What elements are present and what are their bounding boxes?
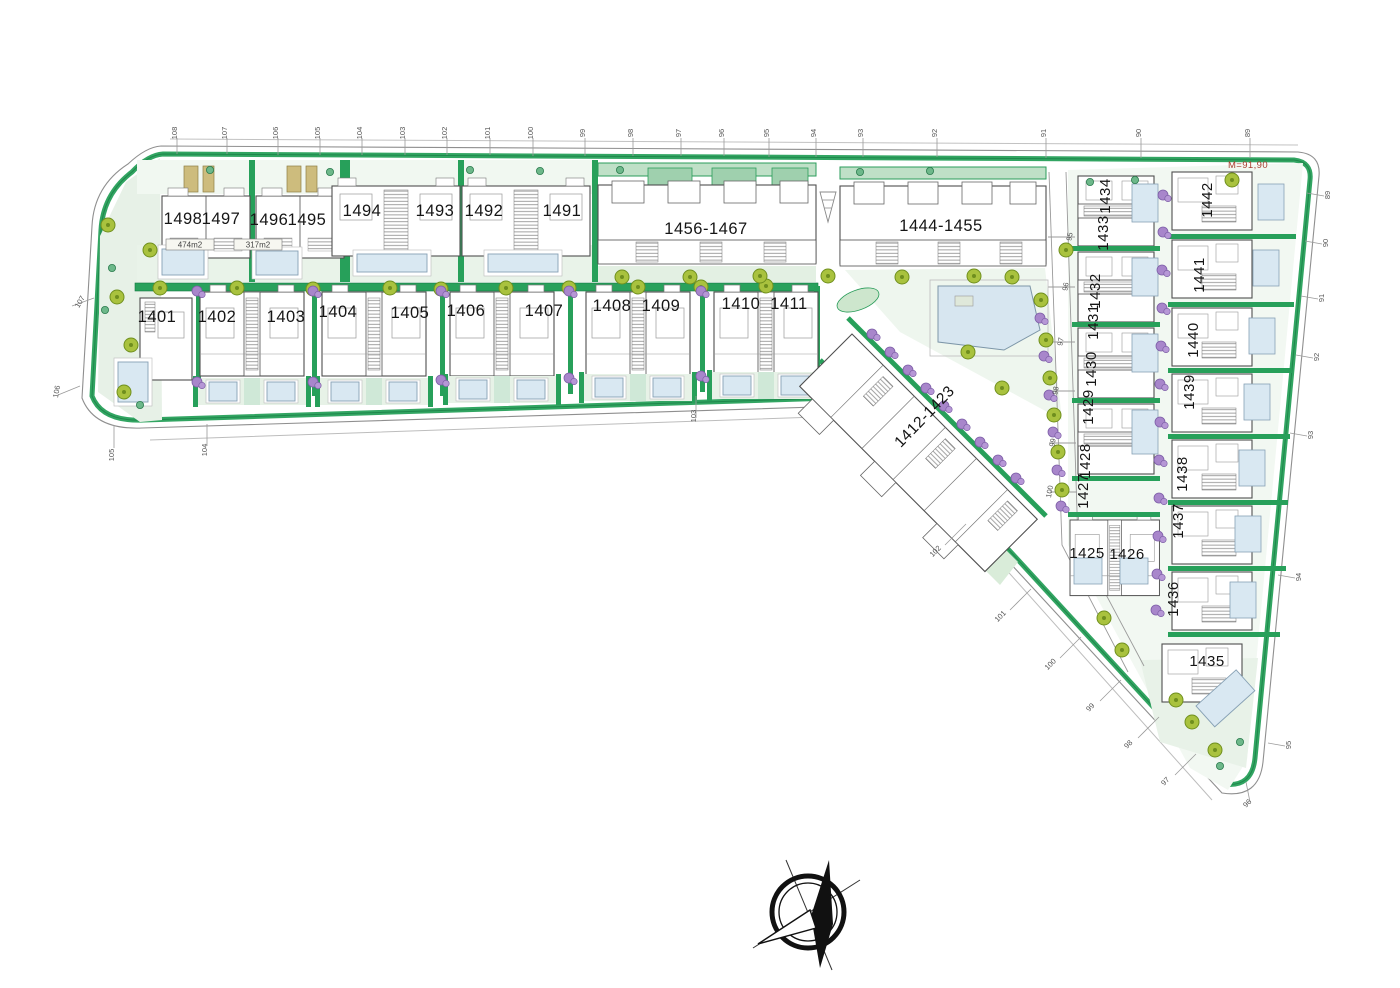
dim-top-106: 106 [271, 127, 280, 140]
dim-inner-95: 95 [1064, 232, 1074, 242]
plot-label-1411: 1411 [770, 295, 807, 313]
dim-top-94: 94 [809, 129, 818, 137]
plot-label-1406: 1406 [447, 302, 486, 320]
dim-top-91: 91 [1039, 129, 1048, 137]
plot-label-1498: 1498 [164, 210, 203, 228]
plot-label-1403: 1403 [267, 308, 306, 326]
plot-label-1405: 1405 [391, 304, 430, 322]
plot-label-1442: 1442 [1199, 182, 1216, 217]
garden-1402-1403 [193, 376, 311, 407]
dim-right-91: 91 [1317, 294, 1326, 302]
plot-label-1408: 1408 [593, 297, 632, 315]
plot-label-1438: 1438 [1174, 456, 1191, 491]
dim-top-102: 102 [440, 127, 449, 140]
dim-left-105: 105 [107, 449, 116, 462]
garden-1406-1407 [443, 374, 561, 405]
building-1402-1403 [200, 285, 304, 376]
dim-top-95: 95 [762, 129, 771, 137]
dim-top-101: 101 [483, 127, 492, 140]
dim-top-92: 92 [930, 129, 939, 137]
plot-label-1491: 1491 [543, 202, 582, 220]
dim-right-96: 96 [1241, 797, 1253, 809]
building-1404-1405 [322, 285, 426, 376]
site-plan-page: 474m2 317m2 1498 1497 1496 1495 1494 149… [0, 0, 1400, 988]
dim-diag-101: 101 [993, 609, 1008, 624]
plot-label-1432: 1432 [1087, 273, 1104, 308]
plot-label-1494: 1494 [343, 202, 382, 220]
garden-1404-1405 [315, 376, 433, 407]
plot-label-1430: 1430 [1083, 351, 1100, 386]
plot-label-1435: 1435 [1189, 653, 1224, 670]
plot-label-1437: 1437 [1170, 503, 1187, 538]
plot-label-1439: 1439 [1181, 374, 1198, 409]
garden-1408-1409 [579, 372, 697, 403]
plot-label-1401: 1401 [138, 308, 177, 326]
dim-right-89: 89 [1323, 191, 1332, 199]
plot-label-1434: 1434 [1097, 178, 1114, 213]
dim-top-108: 108 [170, 127, 179, 140]
dim-top-104: 104 [355, 127, 364, 140]
plot-label-1426: 1426 [1109, 546, 1144, 563]
plot-label-1444-1455: 1444-1455 [899, 217, 982, 235]
dim-top-100: 100 [526, 127, 535, 140]
building-1441 [1172, 240, 1252, 298]
plot-label-1402: 1402 [198, 308, 237, 326]
plot-label-1497: 1497 [202, 210, 241, 228]
dim-top-89: 89 [1243, 129, 1252, 137]
dim-diag-100: 100 [1043, 657, 1058, 672]
dim-left-106: 106 [51, 385, 62, 399]
dim-top-105: 105 [313, 127, 322, 140]
dim-top-98: 98 [626, 129, 635, 137]
dim-diag-97: 97 [1159, 775, 1171, 787]
plot-label-1431: 1431 [1085, 304, 1102, 339]
plot-label-1440: 1440 [1185, 322, 1202, 357]
inner-column [1068, 176, 1160, 596]
plot-label-1492: 1492 [465, 202, 504, 220]
dim-top-103: 103 [398, 127, 407, 140]
dim-top-96: 96 [717, 129, 726, 137]
dim-right-92: 92 [1312, 353, 1321, 361]
site-plan-drawing: 474m2 317m2 1498 1497 1496 1495 1494 149… [0, 0, 1400, 988]
dim-diag-98: 98 [1122, 738, 1134, 750]
plot-label-1495: 1495 [288, 211, 327, 229]
building-1440 [1172, 308, 1252, 366]
dim-top-97: 97 [674, 129, 683, 137]
building-1406-1407 [450, 285, 554, 376]
dim-inner-96: 96 [1060, 282, 1070, 292]
dim-right-93: 93 [1306, 431, 1315, 439]
dim-right-90: 90 [1321, 239, 1330, 247]
plot-label-1425: 1425 [1069, 545, 1104, 562]
area-label-1498: 474m2 [178, 241, 203, 250]
plot-label-1436: 1436 [1165, 581, 1182, 616]
plot-label-1427: 1427 [1075, 473, 1092, 508]
compass-north-icon [753, 860, 860, 970]
dim-right-94: 94 [1294, 573, 1303, 581]
dim-top-99: 99 [578, 129, 587, 137]
plot-label-1410: 1410 [722, 295, 761, 313]
dim-left-104: 104 [200, 444, 209, 457]
dim-inner-99: 99 [1047, 438, 1057, 448]
dim-diag-99: 99 [1084, 701, 1096, 713]
plot-label-1493: 1493 [416, 202, 455, 220]
dim-top-93: 93 [856, 129, 865, 137]
dim-top-107: 107 [220, 127, 229, 140]
dim-top-90: 90 [1134, 129, 1143, 137]
dim-left-107: 107 [73, 294, 87, 309]
plot-label-1456-1467: 1456-1467 [664, 220, 747, 238]
plot-label-1429: 1429 [1080, 389, 1097, 424]
dim-road-103: 103 [689, 410, 698, 423]
plot-label-1496: 1496 [250, 211, 289, 229]
plot-label-1433: 1433 [1095, 215, 1112, 250]
plot-label-1409: 1409 [642, 297, 681, 315]
area-label-1497: 317m2 [246, 241, 271, 250]
dim-right-95: 95 [1284, 741, 1293, 749]
plot-label-1441: 1441 [1191, 257, 1208, 292]
dim-inner-98: 98 [1050, 386, 1060, 396]
plot-label-1404: 1404 [319, 303, 358, 321]
red-elevation-note: M=91,90 [1228, 160, 1268, 171]
dim-inner-97: 97 [1055, 337, 1065, 347]
plot-label-1407: 1407 [525, 302, 564, 320]
